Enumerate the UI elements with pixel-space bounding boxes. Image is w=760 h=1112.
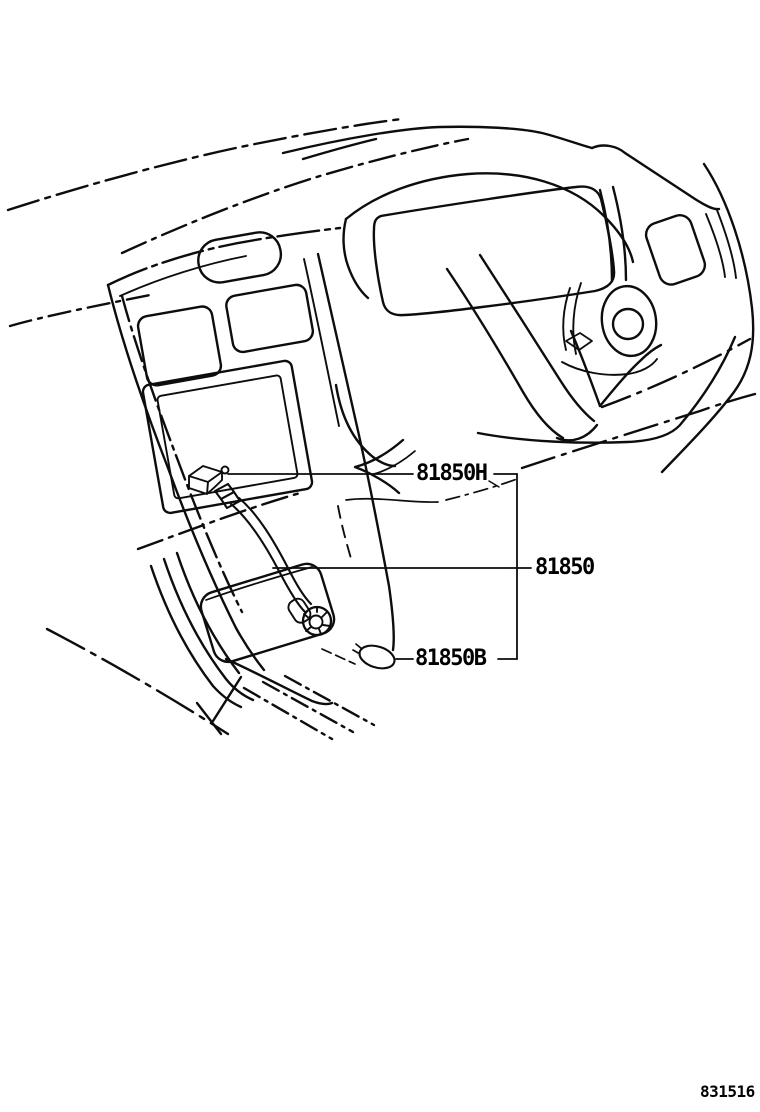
figure-code: 831516 — [700, 1084, 755, 1100]
callout-label-81850: 81850 — [534, 557, 595, 579]
instrument-cluster — [344, 173, 633, 315]
center-stack — [108, 228, 394, 670]
bulb-81850b — [353, 642, 397, 673]
dashboard-line-art — [0, 0, 760, 1112]
callout-label-81850b: 81850B — [414, 648, 486, 670]
callout-label-81850h: 81850H — [415, 463, 487, 485]
diagram-canvas: 81850H 81850 81850B 831516 — [0, 0, 760, 1112]
console — [47, 553, 374, 739]
